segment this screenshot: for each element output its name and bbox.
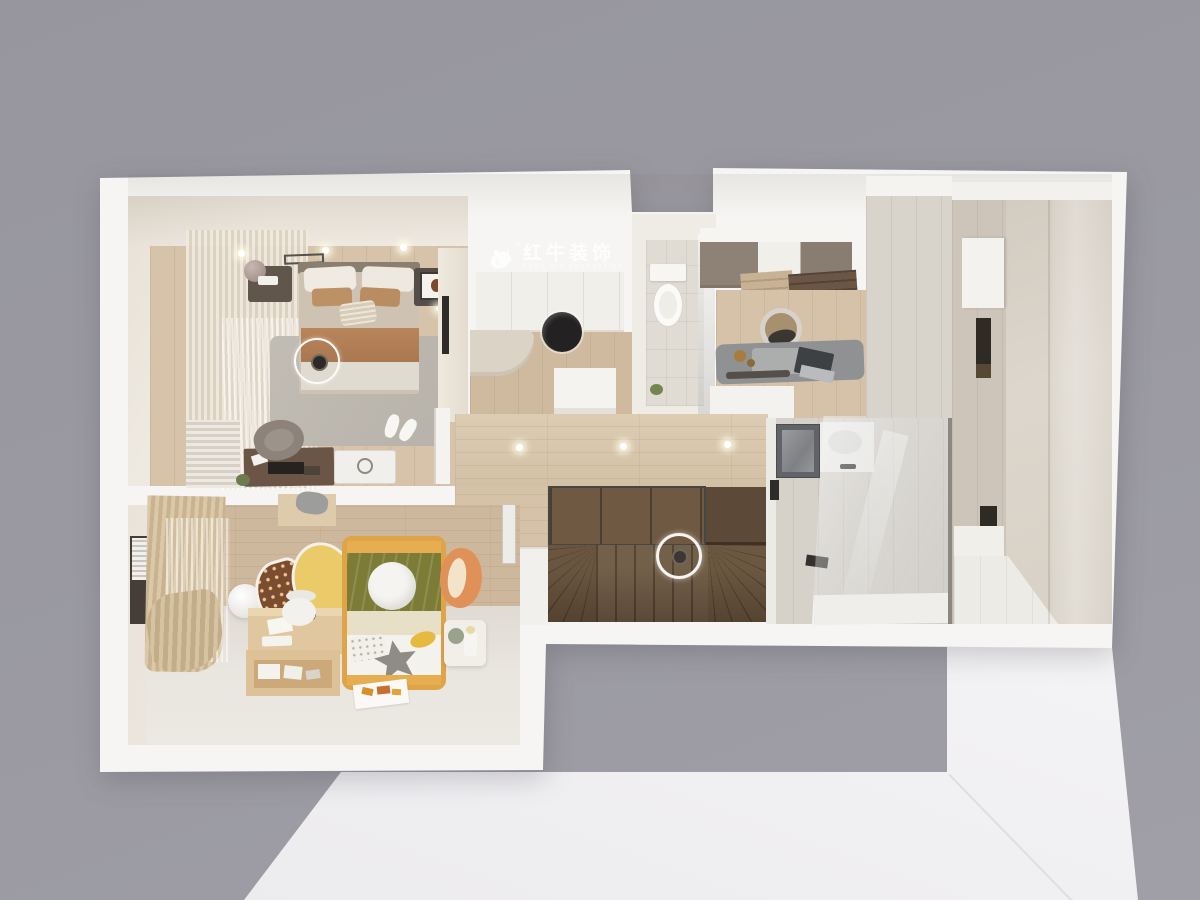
ceiling-spotlight bbox=[238, 250, 245, 257]
wall-niche bbox=[976, 318, 991, 378]
drawing-mark bbox=[377, 685, 391, 694]
round-ottoman bbox=[542, 312, 582, 352]
drawer-item bbox=[305, 669, 320, 680]
corridor-spotlight bbox=[516, 444, 523, 451]
watermark: ® 红牛装饰 HONG NIU DECORATION bbox=[488, 244, 638, 290]
bathroom-wall-edge bbox=[766, 418, 776, 624]
tile-seam-line bbox=[1048, 200, 1050, 624]
toilet-cistern bbox=[650, 264, 686, 281]
ceiling-spotlight bbox=[400, 244, 407, 251]
door-panel-mirror bbox=[502, 504, 516, 564]
small-plant bbox=[650, 384, 663, 395]
stair-landing bbox=[706, 487, 768, 545]
brass-kettle bbox=[734, 350, 746, 362]
kids-lamp bbox=[464, 632, 477, 656]
drawer-box bbox=[283, 665, 302, 680]
watermark-brand: 红牛装饰 bbox=[523, 244, 624, 264]
desk-accessory bbox=[304, 466, 320, 475]
bull-icon: ® bbox=[488, 244, 518, 272]
wall-tv bbox=[442, 296, 449, 354]
desk-keyboard bbox=[268, 462, 304, 474]
kids-bed bbox=[342, 536, 446, 690]
ring-pendant-shade bbox=[311, 354, 328, 371]
appliance-dial bbox=[357, 458, 373, 474]
corridor-floor bbox=[455, 414, 768, 492]
drawer-box bbox=[258, 664, 280, 679]
wall-fixture bbox=[770, 480, 779, 500]
kids-chair-seat bbox=[282, 598, 316, 626]
kids-round-pillow bbox=[368, 562, 416, 610]
nightstand-tray bbox=[258, 276, 278, 285]
kids-lamp-shade bbox=[466, 626, 475, 634]
storage-island bbox=[554, 368, 616, 418]
toilet-seat bbox=[659, 291, 677, 319]
corridor-spotlight bbox=[620, 443, 627, 450]
kids-desk-keyboard bbox=[262, 635, 292, 646]
tiled-partition-wall bbox=[866, 182, 952, 418]
mirror-glass bbox=[782, 430, 814, 472]
radiator-slats bbox=[186, 420, 240, 488]
tea-room-ceiling-strip bbox=[700, 228, 852, 242]
partition-ceiling-edge bbox=[866, 176, 952, 196]
stair-pendant-shade bbox=[672, 549, 688, 565]
shower-room-ceiling bbox=[952, 182, 1112, 200]
potted-plant bbox=[236, 474, 250, 486]
floorplan-render-canvas: ® 红牛装饰 HONG NIU DECORATION bbox=[0, 0, 1200, 900]
shower-curb bbox=[814, 593, 953, 625]
registered-mark: ® bbox=[516, 242, 520, 248]
corridor-spotlight bbox=[724, 441, 731, 448]
tall-white-cabinet bbox=[962, 238, 1004, 308]
drawing-mark bbox=[392, 689, 401, 695]
kids-bed-headboard bbox=[347, 541, 441, 553]
glossy-highlight bbox=[1052, 200, 1112, 624]
deco-ball bbox=[448, 628, 464, 644]
standing-mirror bbox=[434, 408, 450, 484]
brass-cup bbox=[747, 359, 755, 367]
watermark-tagline: HONG NIU DECORATION bbox=[523, 264, 624, 271]
